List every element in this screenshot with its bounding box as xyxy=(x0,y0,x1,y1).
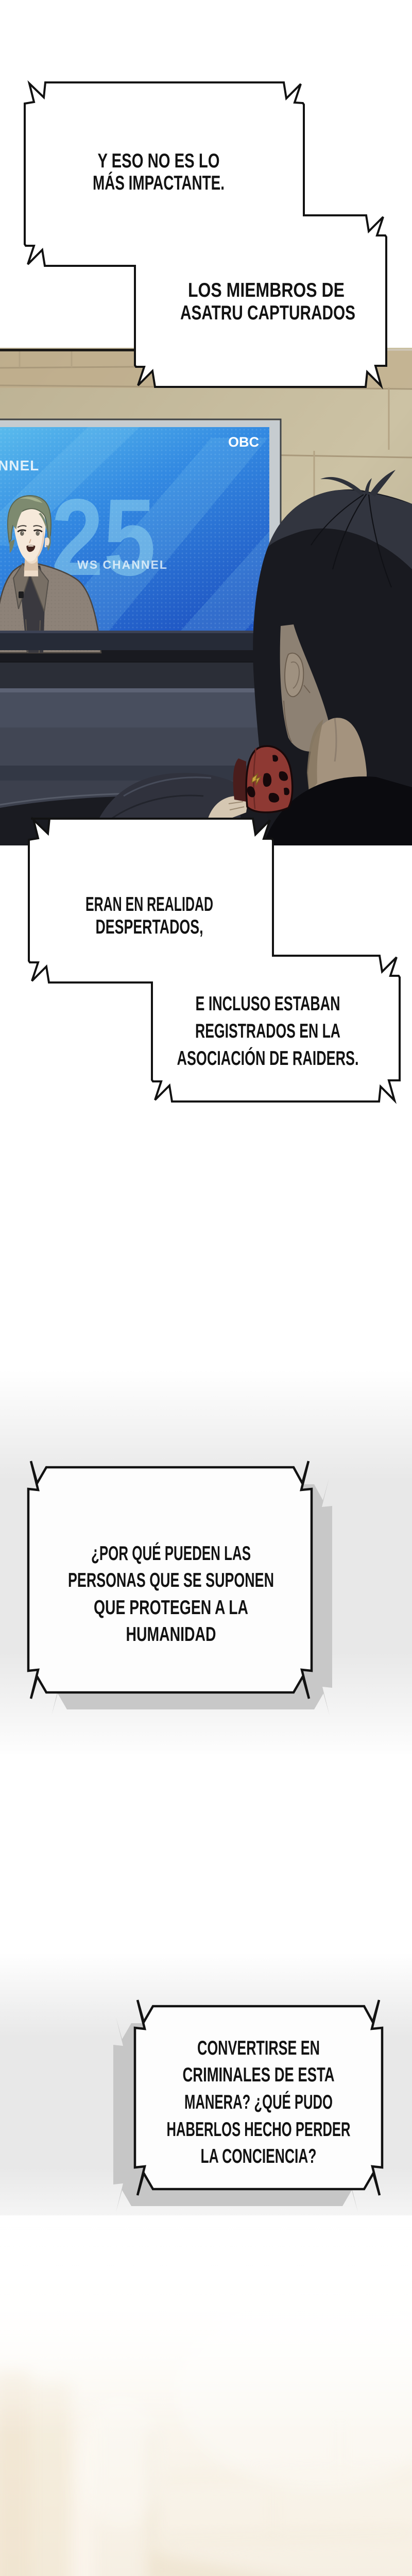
svg-text:ASOCIACIÓN DE RAIDERS.: ASOCIACIÓN DE RAIDERS. xyxy=(177,1047,359,1070)
svg-text:CONVERTIRSE EN: CONVERTIRSE EN xyxy=(197,2037,320,2059)
svg-text:HUMANIDAD: HUMANIDAD xyxy=(126,1623,216,1646)
svg-text:REGISTRADOS EN LA: REGISTRADOS EN LA xyxy=(195,1020,340,1042)
svg-text:MANERA? ¿QUÉ PUDO: MANERA? ¿QUÉ PUDO xyxy=(184,2091,333,2113)
svg-text:DESPERTADOS,: DESPERTADOS, xyxy=(96,916,203,938)
svg-text:WS CHANNEL: WS CHANNEL xyxy=(77,558,168,571)
svg-text:PERSONAS QUE SE SUPONEN: PERSONAS QUE SE SUPONEN xyxy=(68,1569,274,1591)
svg-text:¿POR QUÉ PUEDEN LAS: ¿POR QUÉ PUEDEN LAS xyxy=(91,1542,251,1565)
svg-text:HABERLOS HECHO PERDER: HABERLOS HECHO PERDER xyxy=(167,2119,351,2141)
svg-text:LA CONCIENCIA?: LA CONCIENCIA? xyxy=(201,2145,317,2167)
svg-text:ERAN EN REALIDAD: ERAN EN REALIDAD xyxy=(85,893,213,916)
svg-text:NNEL: NNEL xyxy=(0,457,39,473)
svg-text:Y ESO NO ES LO: Y ESO NO ES LO xyxy=(98,150,220,172)
svg-text:QUE PROTEGEN A LA: QUE PROTEGEN A LA xyxy=(94,1597,248,1619)
svg-text:ASATRU CAPTURADOS: ASATRU CAPTURADOS xyxy=(180,302,355,324)
svg-text:MÁS IMPACTANTE.: MÁS IMPACTANTE. xyxy=(93,172,225,194)
svg-text:E INCLUSO ESTABAN: E INCLUSO ESTABAN xyxy=(196,993,340,1015)
svg-text:LOS MIEMBROS DE: LOS MIEMBROS DE xyxy=(188,279,345,301)
svg-text:CRIMINALES DE ESTA: CRIMINALES DE ESTA xyxy=(183,2064,335,2086)
svg-text:OBC: OBC xyxy=(228,434,259,450)
